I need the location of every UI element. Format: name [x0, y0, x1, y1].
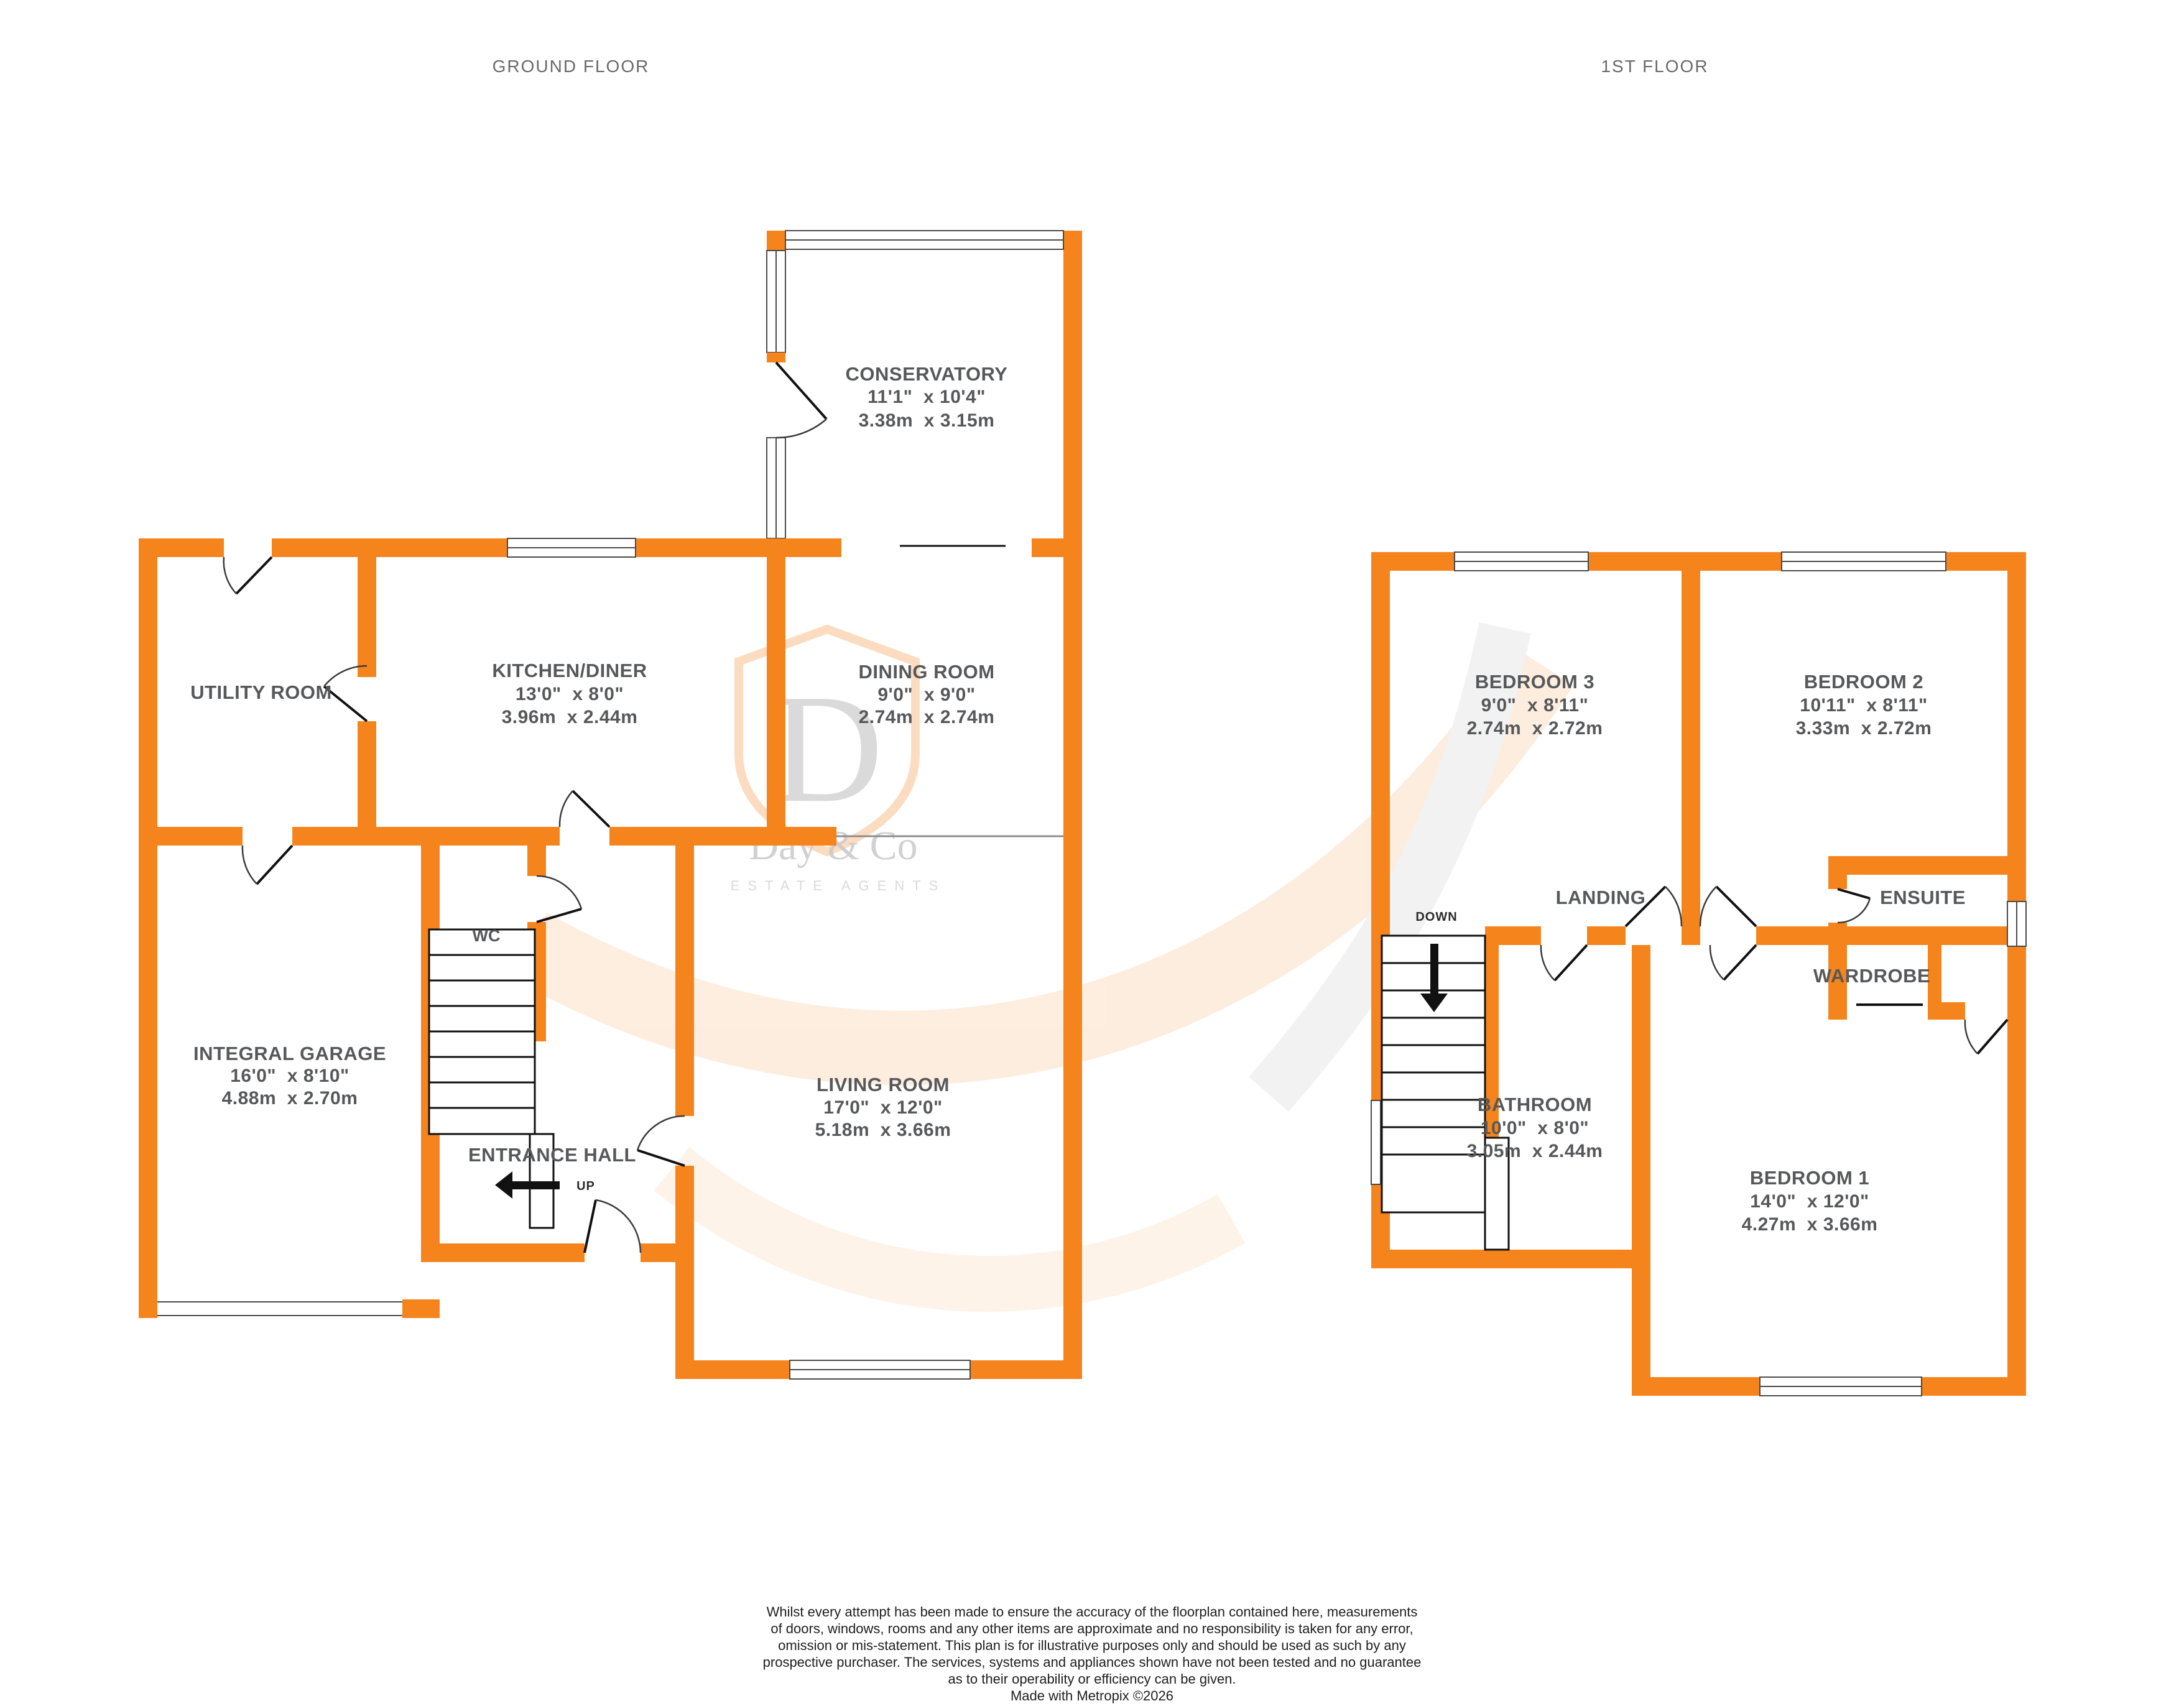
watermark-tagline: ESTATE AGENTS: [731, 878, 946, 893]
garage-internal-door: [243, 846, 292, 884]
kitchen-diner-imperial: 13'0" x 8'0": [516, 684, 624, 704]
kitchen-diner-label: KITCHEN/DINER: [492, 660, 647, 681]
garage-metric: 4.88m x 2.70m: [222, 1088, 358, 1109]
conservatory-left-window-upper: [767, 251, 785, 353]
living-room-door: [637, 1116, 685, 1166]
utility-external-door: [224, 557, 272, 594]
living-room-metric: 5.18m x 3.66m: [815, 1120, 951, 1140]
bedroom3-metric: 2.74m x 2.72m: [1467, 718, 1603, 739]
watermark-initial: D: [771, 663, 884, 835]
wc-label: WC: [473, 926, 501, 945]
bedroom2-metric: 3.33m x 2.72m: [1796, 718, 1932, 739]
dining-room-label: DINING ROOM: [858, 661, 994, 683]
bedroom1-window: [1760, 1377, 1922, 1396]
disclaimer: Whilst every attempt has been made to en…: [763, 1604, 1422, 1704]
bedroom2-door: [1700, 887, 1756, 926]
bedroom1-imperial: 14'0" x 12'0": [1750, 1191, 1869, 1212]
bedroom3-label: BEDROOM 3: [1475, 671, 1594, 693]
conservatory-door: [776, 362, 826, 438]
dining-room-imperial: 9'0" x 9'0": [877, 685, 975, 705]
bedroom3-imperial: 9'0" x 8'11": [1481, 695, 1589, 716]
disclaimer-line: of doors, windows, rooms and any other i…: [770, 1621, 1413, 1636]
garage-imperial: 16'0" x 8'10": [230, 1066, 349, 1086]
garage-door: [157, 1301, 402, 1317]
bathroom-imperial: 10'0" x 8'0": [1481, 1118, 1589, 1138]
disclaimer-line: Whilst every attempt has been made to en…: [767, 1604, 1418, 1620]
bathroom-metric: 3.05m x 2.44m: [1467, 1141, 1603, 1161]
metropix-credit: Made with Metropix ©2026: [1011, 1688, 1173, 1704]
living-room-label: LIVING ROOM: [817, 1074, 950, 1095]
bedroom2-window: [1782, 552, 1946, 571]
bedroom1-label: BEDROOM 1: [1750, 1167, 1869, 1189]
floorplan-canvas: D Day & Co ESTATE AGENTS GROUND FLOOR 1S…: [0, 0, 2184, 1706]
bedroom1-metric: 4.27m x 3.66m: [1742, 1214, 1878, 1235]
kitchen-diner-metric: 3.96m x 2.44m: [502, 707, 638, 727]
down-label: DOWN: [1415, 910, 1457, 924]
wardrobe-door: [1965, 1020, 2007, 1054]
garage-label: INTEGRAL GARAGE: [193, 1043, 386, 1064]
kitchen-window: [507, 538, 636, 557]
disclaimer-line: as to their operability or efficiency ca…: [948, 1671, 1236, 1687]
inner-hall-door: [537, 876, 581, 922]
bedroom3-window: [1455, 552, 1588, 571]
bathroom-label: BATHROOM: [1478, 1094, 1592, 1115]
wardrobe-label: WARDROBE: [1813, 965, 1930, 987]
disclaimer-line: prospective purchaser. The services, sys…: [763, 1654, 1422, 1670]
front-door: [585, 1200, 641, 1253]
living-room-imperial: 17'0" x 12'0": [823, 1097, 943, 1118]
conservatory-left-window-lower: [767, 438, 785, 538]
disclaimer-line: omission or mis-statement. This plan is …: [778, 1638, 1406, 1653]
conservatory-label: CONSERVATORY: [846, 363, 1008, 385]
first-floor-title: 1ST FLOOR: [1601, 57, 1708, 76]
bathroom-door: [1541, 945, 1587, 980]
conservatory-imperial: 11'1" x 10'4": [868, 387, 986, 407]
floorplan-page: D Day & Co ESTATE AGENTS GROUND FLOOR 1S…: [0, 0, 2184, 1706]
bedroom2-imperial: 10'11" x 8'11": [1800, 695, 1927, 716]
ensuite-label: ENSUITE: [1880, 887, 1966, 908]
dining-room-metric: 2.74m x 2.74m: [859, 707, 995, 727]
kitchen-door: [560, 791, 609, 827]
utility-room-label: UTILITY ROOM: [190, 681, 332, 703]
ensuite-door: [1838, 889, 1870, 923]
bedroom1-door: [1710, 945, 1756, 980]
landing-label: LANDING: [1556, 887, 1646, 908]
up-label: UP: [576, 1179, 595, 1193]
entrance-hall-label: ENTRANCE HALL: [468, 1144, 636, 1166]
conservatory-metric: 3.38m x 3.15m: [859, 410, 995, 431]
ensuite-window: [2007, 901, 2026, 946]
ground-floor-title: GROUND FLOOR: [493, 57, 650, 76]
bedroom2-label: BEDROOM 2: [1804, 671, 1923, 693]
ground-floor-plan: CONSERVATORY 11'1" x 10'4" 3.38m x 3.15m…: [139, 231, 1082, 1379]
conservatory-top-window: [785, 231, 1063, 249]
living-room-window: [790, 1360, 970, 1379]
